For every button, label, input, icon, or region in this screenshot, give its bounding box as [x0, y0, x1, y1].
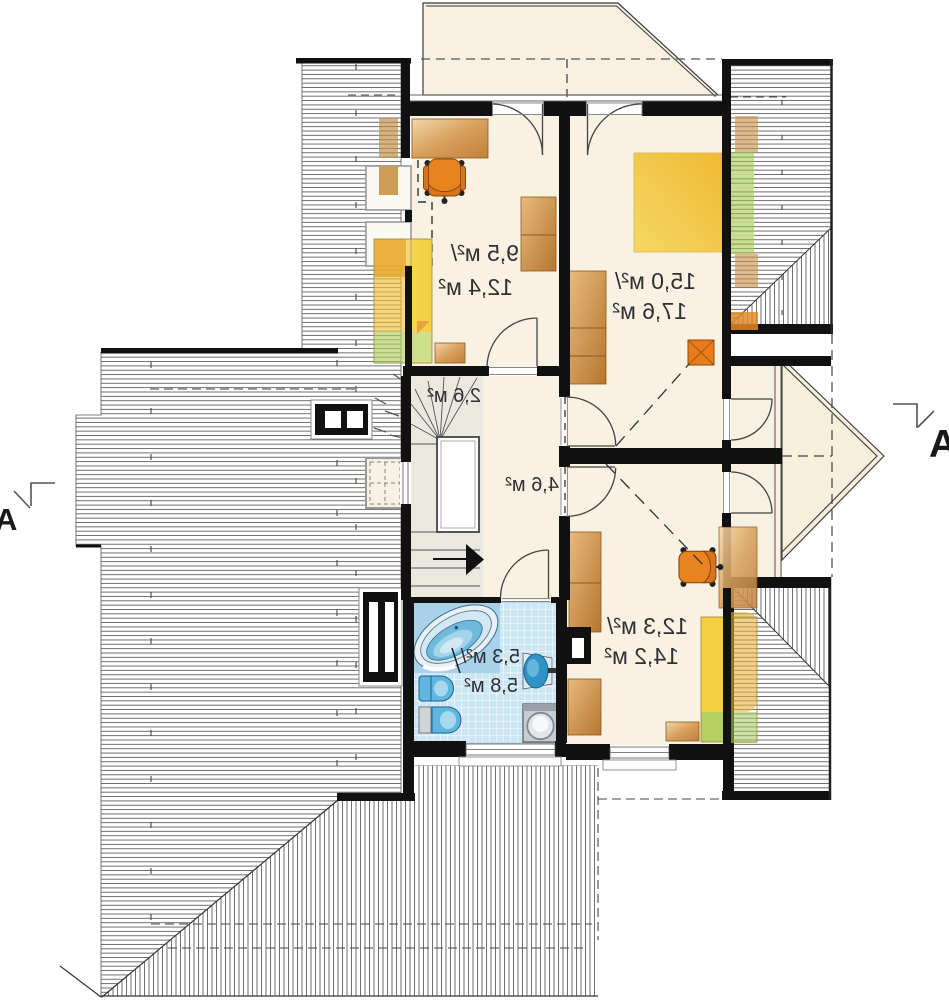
svg-text:A: A — [0, 502, 17, 537]
svg-text:17,6 м²: 17,6 м² — [612, 298, 687, 324]
svg-text:15,0 м²/: 15,0 м²/ — [614, 268, 696, 294]
svg-text:4,6 м²: 4,6 м² — [505, 474, 559, 496]
svg-text:2,6 м²: 2,6 м² — [427, 385, 481, 407]
svg-text:12,4 м²: 12,4 м² — [438, 274, 513, 300]
svg-text:12,3 м²/: 12,3 м²/ — [606, 613, 688, 639]
svg-text:A: A — [929, 423, 949, 466]
svg-text:5,8 м²: 5,8 м² — [464, 675, 518, 697]
svg-text:9,5 м²/: 9,5 м²/ — [450, 240, 519, 266]
svg-text:5,3 м²/: 5,3 м²/ — [460, 646, 520, 668]
svg-text:14,2 м²: 14,2 м² — [604, 643, 679, 669]
